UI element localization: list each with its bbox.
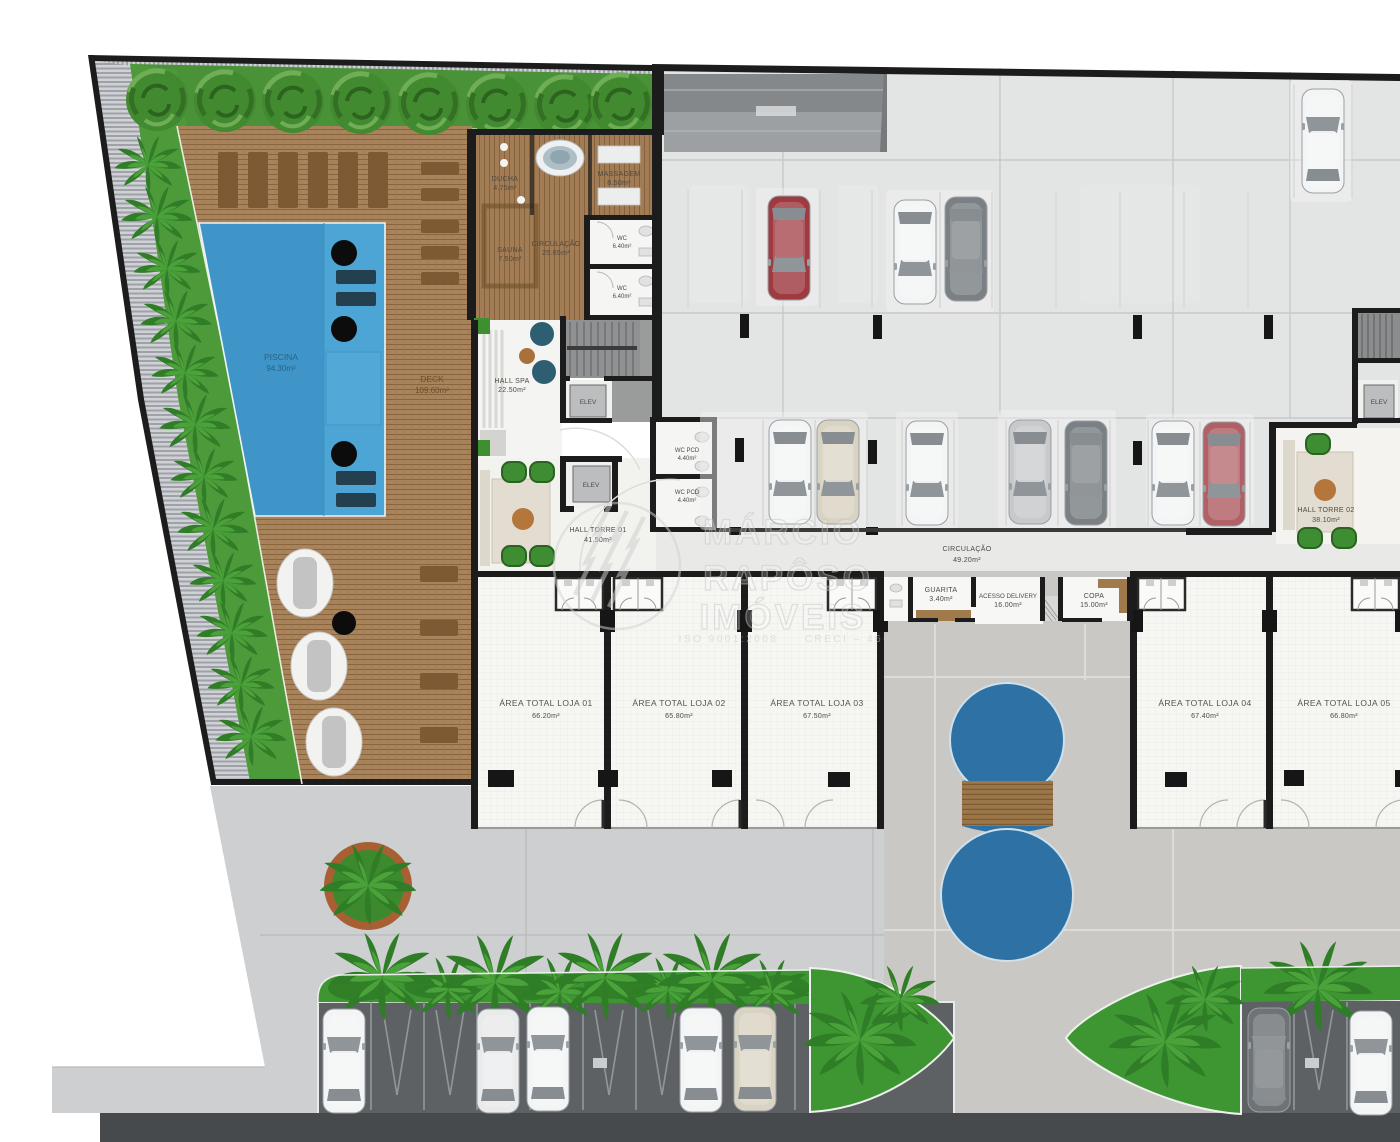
svg-text:ELEV: ELEV	[580, 399, 597, 406]
svg-text:ÁREA TOTAL LOJA 04: ÁREA TOTAL LOJA 04	[1158, 698, 1251, 708]
svg-text:22.50m²: 22.50m²	[498, 387, 526, 394]
svg-text:CIRCULAÇÃO: CIRCULAÇÃO	[532, 239, 581, 248]
svg-text:IMÓVEIS: IMÓVEIS	[700, 597, 867, 637]
svg-text:WC: WC	[617, 286, 628, 292]
svg-text:WC PCD: WC PCD	[675, 448, 700, 454]
svg-text:4.40m²: 4.40m²	[678, 498, 697, 504]
svg-text:94.30m²: 94.30m²	[266, 364, 296, 373]
svg-text:ELEV: ELEV	[583, 482, 600, 489]
svg-text:DUCHA: DUCHA	[492, 176, 518, 183]
svg-text:15.00m²: 15.00m²	[1080, 602, 1108, 609]
svg-text:8.50m²: 8.50m²	[607, 180, 631, 187]
svg-text:PISCINA: PISCINA	[264, 352, 298, 362]
svg-text:ÁREA TOTAL LOJA 02: ÁREA TOTAL LOJA 02	[632, 698, 725, 708]
svg-text:MASSAGEM: MASSAGEM	[598, 171, 641, 178]
svg-text:38.10m²: 38.10m²	[1312, 517, 1340, 524]
svg-text:COPA: COPA	[1084, 593, 1105, 600]
svg-text:WC PCD: WC PCD	[675, 490, 700, 496]
svg-text:HALL TORRE 02: HALL TORRE 02	[1297, 507, 1354, 514]
svg-text:7.50m²: 7.50m²	[498, 256, 522, 263]
svg-text:4.75m²: 4.75m²	[493, 185, 517, 192]
svg-text:HALL SPA: HALL SPA	[494, 378, 529, 385]
svg-text:67.50m²: 67.50m²	[803, 713, 831, 720]
svg-text:ÁREA TOTAL LOJA 05: ÁREA TOTAL LOJA 05	[1297, 698, 1390, 708]
svg-text:25.65m²: 25.65m²	[542, 250, 570, 257]
svg-text:WC: WC	[617, 236, 628, 242]
svg-text:DECK: DECK	[420, 374, 444, 384]
svg-text:ACESSO DELIVERY: ACESSO DELIVERY	[979, 593, 1037, 600]
svg-text:49.20m²: 49.20m²	[953, 557, 981, 564]
svg-text:GUARITA: GUARITA	[925, 587, 958, 594]
svg-text:66.20m²: 66.20m²	[532, 713, 560, 720]
svg-text:ÁREA TOTAL LOJA 01: ÁREA TOTAL LOJA 01	[499, 698, 592, 708]
svg-text:16.00m²: 16.00m²	[994, 602, 1022, 609]
svg-text:4.40m²: 4.40m²	[678, 456, 697, 462]
svg-text:CIRCULAÇÃO: CIRCULAÇÃO	[943, 544, 992, 553]
svg-text:6.40m²: 6.40m²	[613, 244, 632, 250]
svg-text:109.60m²: 109.60m²	[415, 386, 449, 395]
svg-text:6.40m²: 6.40m²	[613, 294, 632, 300]
svg-text:ÁREA TOTAL LOJA 03: ÁREA TOTAL LOJA 03	[770, 698, 863, 708]
svg-text:MÁRCIO: MÁRCIO	[703, 512, 863, 552]
svg-text:RAPÔSO: RAPÔSO	[703, 558, 873, 598]
svg-text:3.40m²: 3.40m²	[929, 596, 953, 603]
svg-text:SAUNA: SAUNA	[497, 247, 523, 254]
svg-text:67.40m²: 67.40m²	[1191, 713, 1219, 720]
svg-text:ELEV: ELEV	[1371, 399, 1388, 406]
svg-text:66.80m²: 66.80m²	[1330, 713, 1358, 720]
svg-text:ISO 9001:2008 CRECI – 4663: ISO 9001:2008 CRECI – 4663	[679, 634, 900, 645]
svg-text:65.80m²: 65.80m²	[665, 713, 693, 720]
